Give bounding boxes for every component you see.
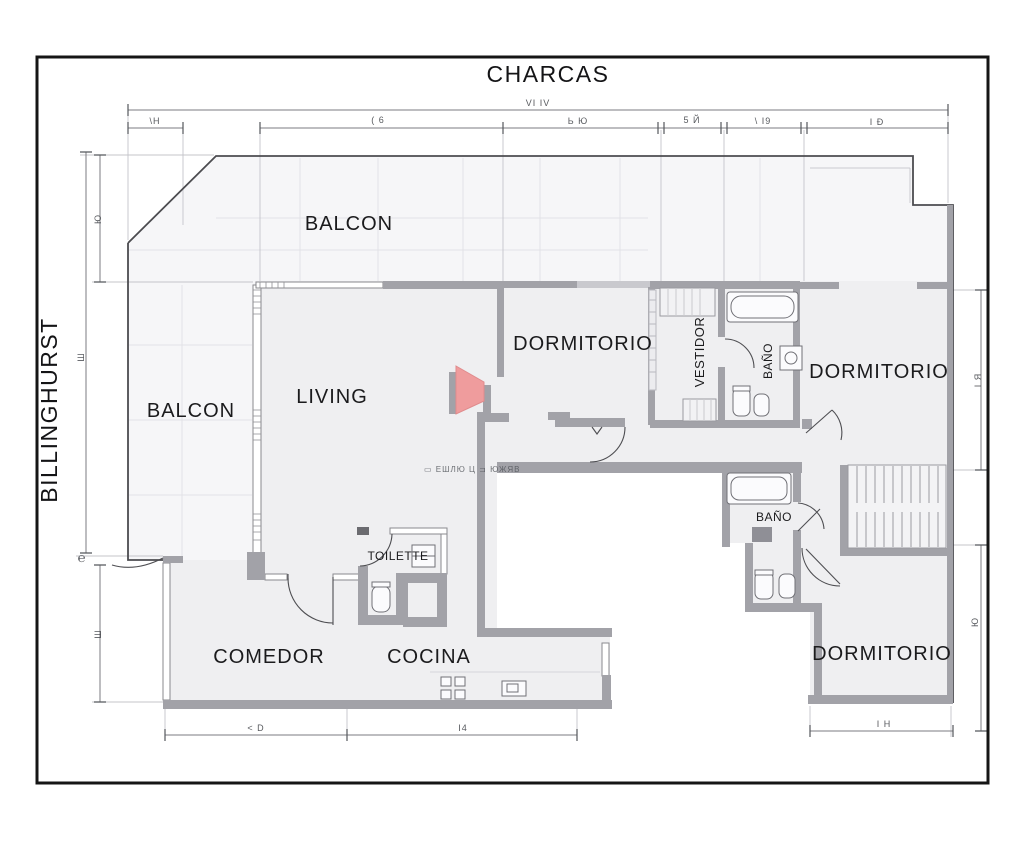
bathtub-1 [727,292,798,322]
dim-bottom-3: I H [877,719,892,729]
toilet-toilette [372,582,390,612]
staircase [848,465,946,548]
bidet-1 [754,394,769,416]
dim-top-seg-2: ( 6 [371,115,385,125]
room-label-comedor: COMEDOR [213,646,324,668]
sink-1 [780,346,802,370]
dim-top-seg-6: I Ð [870,117,885,127]
room-label-bano-2: BAÑO [756,510,792,524]
dim-bottom-2: I4 [458,723,468,733]
room-label-cocina: COCINA [387,646,471,668]
dim-left-mark: ℮ [78,550,87,565]
room-label-balcon-top: BALCON [305,213,393,235]
dim-right-2: Ю [970,617,980,627]
room-label-living: LIVING [296,386,368,408]
room-label-dormitorio-1: DORMITORIO [513,333,653,355]
room-label-vestidor: VESTIDOR [692,317,707,387]
toilet-1 [733,386,750,416]
dim-top-seg-1: \H [150,116,161,126]
dim-right-1: I Я [973,373,983,388]
toilet-2 [755,570,773,599]
closet-top [660,288,715,316]
room-label-toilette: TOILETTE [367,549,428,563]
dim-top-overall: VI IV [526,98,551,108]
street-label-top: CHARCAS [487,61,610,87]
closet-bottom [683,399,716,421]
room-label-dormitorio-3: DORMITORIO [812,643,952,665]
dim-bottom-1: < D [247,723,264,733]
room-label-balcon-left: BALCON [147,400,235,422]
room-label-bano-1: BAÑO [761,343,775,379]
dim-left-2: Ш [76,352,86,361]
street-label-left: BILLINGHURST [36,317,62,502]
floor-plan-page: CHARCAS BILLINGHURST BALCON BALCON LIVIN… [0,0,1024,851]
dim-left-3: Ш [93,629,103,638]
bathtub-2 [727,473,791,504]
bidet-2 [779,574,795,598]
hall-annotation: ▭ ЕШЛЮ Ц ⊐ ЮЖЯВ [424,465,520,474]
floor-plan: CHARCAS BILLINGHURST BALCON BALCON LIVIN… [0,0,1024,851]
room-label-dormitorio-2: DORMITORIO [809,361,949,383]
dim-top-seg-4: 5 Й [684,114,701,125]
dim-top-seg-3: Ь Ю [568,116,589,126]
dim-left-1: Ю [93,214,103,224]
dim-top-seg-5: \ I9 [755,116,772,126]
kitchen-sink [502,681,526,696]
